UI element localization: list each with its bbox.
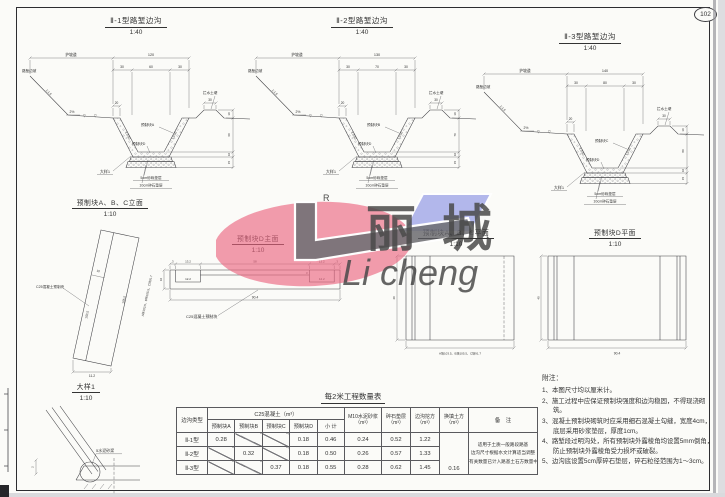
dim-total: 120 xyxy=(148,53,154,57)
cell-type: Ⅱ-2型 xyxy=(177,447,208,461)
slope-label: 路堑边坡 xyxy=(22,68,37,73)
dim-mound-width: 30 xyxy=(662,114,666,118)
dim-right: 30 xyxy=(632,81,636,85)
slope-label: 路堑边坡 xyxy=(248,68,263,73)
dim-right: 30 xyxy=(178,65,182,69)
block-d-plan-drawing: 40 90.4 xyxy=(536,250,694,358)
detail-1-drawing: 5水泥砂浆 2 xyxy=(30,404,142,496)
block-d-front-figure: 预制块D主面 1:10 3 13.2 58 13.2 3 12.2 12.2 xyxy=(158,228,358,328)
dim-lining-top: 20 xyxy=(569,117,573,121)
block-bottom-label: 预制块D xyxy=(132,141,146,146)
vdim-cushion: 15 xyxy=(681,177,685,181)
mound-label: 拦水土埂 xyxy=(657,106,672,111)
col-header-type: 边沟类型 xyxy=(177,408,208,433)
ground-lines xyxy=(256,76,476,119)
dim-height: 10 xyxy=(159,278,163,282)
dim-mound-width: 30 xyxy=(208,98,212,102)
cell-replacement: 0.16 xyxy=(440,433,469,475)
vdim-cushion: 15 xyxy=(227,161,231,165)
dim-notch-depth: 3 xyxy=(306,271,308,275)
notes-section: 附注： 1、本图尺寸均以厘米计。 2、施工过程中应保证预制块强度和边沟稳固，不得… xyxy=(542,374,714,468)
dim-berm: 护坡道 xyxy=(65,52,77,57)
vdim-depth: 60 xyxy=(227,133,231,137)
sub-header-subtotal: 小 计 xyxy=(317,420,344,433)
block-outline xyxy=(406,256,514,340)
section-2-2-figure: Ⅱ-2型路堑边沟 1:40 护坡道 130 30 xyxy=(246,10,478,192)
col-header-excavation: 边沟挖方 （m³） xyxy=(411,408,440,433)
section-title-wrap: Ⅱ-1型路堑边沟 1:40 xyxy=(20,10,252,36)
note-item: 2、施工过程中应保证预制块强度和边沟稳固，不得现浇砌筑。 xyxy=(542,397,714,416)
dim-width: 90.4 xyxy=(614,352,621,356)
quantity-table: 边沟类型 C25混凝土（m³） M10水泥砂浆 （m³） 碎石垫层 （m³） 边… xyxy=(176,407,538,475)
section-scale: 1:40 xyxy=(20,28,252,36)
block-bottom-label: 预制块D xyxy=(586,157,600,162)
detail-ref-label: 大样1 xyxy=(100,168,111,174)
cell-value: 1.45 xyxy=(411,461,440,475)
block-title-wrap: 预制块A、B、C立面 1:10 xyxy=(34,192,186,218)
block-outline xyxy=(170,270,340,289)
dim-height: 40 xyxy=(537,296,541,300)
cell-value: 0.50 xyxy=(317,447,344,461)
mound-label: 拦水土埂 xyxy=(429,90,444,95)
scan-corner-mark xyxy=(0,485,9,497)
block-scale: 1:10 xyxy=(390,240,522,248)
block-side-label: 预制块B xyxy=(367,122,381,127)
block-title-wrap: 预制块A、B、C平面 1:10 xyxy=(390,222,522,248)
cell-value: 0.46 xyxy=(317,433,344,447)
dim-mid: 80 xyxy=(603,81,607,85)
vdim-depth: 80 xyxy=(681,149,685,153)
block-d-front-drawing: 3 13.2 58 13.2 3 12.2 12.2 3 10 90.4 C25… xyxy=(158,256,358,328)
dimension-lines xyxy=(540,255,688,350)
col-header-mortar: M10水泥砂浆 （m³） xyxy=(345,408,382,433)
cell-value: 0.28 xyxy=(345,461,382,475)
table-row: Ⅱ-1型 0.28 0.18 0.46 0.24 0.52 1.22 0.16 … xyxy=(177,433,538,447)
water-level-icon: ▽ xyxy=(320,114,324,118)
dim-t3: 58 xyxy=(253,260,257,264)
remark-line: 边沟尺寸根据水文计算适当调整 xyxy=(469,449,537,457)
mound-label: 拦水土埂 xyxy=(203,90,218,95)
col-header-line: （m³） xyxy=(440,420,468,426)
detail-ref-label: 大样1 xyxy=(326,168,337,174)
vdim-block: 10 xyxy=(453,153,457,157)
dim-length-a: 103.5 xyxy=(84,310,90,319)
ditch-cross-section-drawing: 护坡道 130 30 70 30 20 30 拦水土埂 路堑边坡 1:1.5 2… xyxy=(246,38,478,192)
grade-label: 2% xyxy=(296,110,301,114)
water-level-icon: ▽ xyxy=(94,114,98,118)
dim-total: 130 xyxy=(374,53,380,57)
cell-value: 0.24 xyxy=(345,433,382,447)
notes-title: 附注： xyxy=(542,374,714,384)
cell-value: 1.22 xyxy=(411,433,440,447)
dim-mound-width: 30 xyxy=(434,98,438,102)
note-item: 1、本图尺寸均以厘米计。 xyxy=(542,386,714,396)
cell-empty-slash xyxy=(208,461,235,475)
block-lengths-note: A块103.5、B块105.5、C块91.7 xyxy=(439,351,481,356)
cell-empty-slash xyxy=(208,447,235,461)
block-abc-plan-drawing: 40 A块103.5、B块105.5、C块91.7 xyxy=(390,250,522,358)
note-item: 5、边沟底设置5cm厚碎石垫层，碎石粒径范围为1～3cm。 xyxy=(542,457,714,467)
section-title: Ⅱ-2型路堑边沟 xyxy=(331,15,393,28)
cell-value: 0.52 xyxy=(382,433,411,447)
cushion1-label: 5cm砂砾垫层 xyxy=(140,175,162,180)
dim-lining-top: 20 xyxy=(341,101,345,105)
dim-berm: 护坡道 xyxy=(519,68,531,73)
cell-value: 0.18 xyxy=(290,447,317,461)
detail-ref-label: 大样1 xyxy=(554,184,565,190)
cell-empty-slash xyxy=(235,433,262,447)
block-abc-plan-figure: 预制块A、B、C平面 1:10 40 A块103.5、B块105.5、C块91.… xyxy=(390,222,522,358)
block-outline xyxy=(548,256,686,340)
block-d-plan-figure: 预制块D平面 1:10 40 90.4 xyxy=(536,222,694,358)
sub-header-block-a: 预制块A xyxy=(208,420,235,433)
cell-empty-slash xyxy=(235,461,262,475)
block-title: 预制块D平面 xyxy=(589,227,641,239)
section-2-1-figure: Ⅱ-1型路堑边沟 1:40 护坡道 120 30 xyxy=(20,10,252,192)
cell-type: Ⅱ-1型 xyxy=(177,433,208,447)
section-title-wrap: Ⅱ-2型路堑边沟 1:40 xyxy=(246,10,478,36)
cell-value: 0.26 xyxy=(345,447,382,461)
cell-value: 0.55 xyxy=(317,461,344,475)
block-outline xyxy=(73,230,139,366)
detail-1-figure: 大样1 1:10 5水泥砂浆 2 xyxy=(30,376,142,496)
remark-line: 有关数量已计入路基土石方数量中 xyxy=(469,458,537,466)
block-side-label: 预制块C xyxy=(595,138,609,143)
vdim-depth: 70 xyxy=(453,133,457,137)
cushion2-label: 10cm碎石垫层 xyxy=(139,183,163,188)
section-title: Ⅱ-3型路堑边沟 xyxy=(559,31,621,44)
vdim-top: 10 xyxy=(453,112,457,116)
cushion2-label: 10cm碎石垫层 xyxy=(593,199,617,204)
detail-title-wrap: 大样1 1:10 xyxy=(30,376,142,402)
col-header-line: （m³） xyxy=(382,420,410,426)
dim-width: 90.4 xyxy=(252,296,259,300)
dim-t5: 3 xyxy=(336,260,338,264)
dim-notch-right: 12.2 xyxy=(319,277,325,281)
remark-line: 适用于土质一般路段路基 xyxy=(469,441,537,449)
section-scale: 1:40 xyxy=(470,44,710,52)
block-lengths-note: A块103.5、B块105.5、C块91.7 xyxy=(140,274,154,316)
table-title: 每2米工程数量表 xyxy=(321,391,386,404)
section-title-wrap: Ⅱ-3型路堑边沟 1:40 xyxy=(470,26,710,52)
col-header-c25: C25混凝土（m³） xyxy=(208,408,345,420)
dim-mid: 60 xyxy=(149,65,153,69)
dim-mid: 70 xyxy=(375,65,379,69)
joint-material-label: 5水泥砂浆 xyxy=(96,447,114,453)
grade-label: 2% xyxy=(70,110,75,114)
dim-right: 30 xyxy=(404,65,408,69)
margin-binding-marks xyxy=(4,388,12,472)
dim-left: 30 xyxy=(574,81,578,85)
cell-value: 0.57 xyxy=(382,447,411,461)
sub-header-block-c: 预制块C xyxy=(262,420,289,433)
grade-label: 2% xyxy=(524,126,529,130)
block-scale: 1:10 xyxy=(536,240,694,248)
cushion2-label: 10cm碎石垫层 xyxy=(365,183,389,188)
cushion1-label: 5cm砂砾垫层 xyxy=(594,191,616,196)
block-title-wrap: 预制块D主面 1:10 xyxy=(158,228,358,254)
cell-remark: 适用于土质一般路段路基 边沟尺寸根据水文计算适当调整 有关数量已计入路基土石方数… xyxy=(469,433,538,475)
dim-left: 30 xyxy=(120,65,124,69)
dim-t2: 13.2 xyxy=(185,260,191,264)
dim-left: 30 xyxy=(346,65,350,69)
detail-title: 大样1 xyxy=(72,381,101,393)
dim-t1: 3 xyxy=(172,260,174,264)
cell-value: 1.33 xyxy=(411,447,440,461)
section-scale: 1:40 xyxy=(246,28,478,36)
ditch-cross-section-drawing: 护坡道 140 30 80 30 20 30 拦水土埂 路堑边坡 1:1.5 2… xyxy=(474,54,706,208)
dim-length-b: 105.5 xyxy=(121,295,127,304)
block-scale: 1:10 xyxy=(34,210,186,218)
cell-value: 0.18 xyxy=(290,461,317,475)
dim-total: 140 xyxy=(602,69,608,73)
quantity-table-section: 每2米工程数量表 边沟类型 C25混凝土（m³） M10水泥砂浆 （m³） 碎石… xyxy=(176,386,530,475)
vdim-block: 10 xyxy=(227,153,231,157)
cell-value: 0.18 xyxy=(290,433,317,447)
dim-berm: 护坡道 xyxy=(291,52,303,57)
joint-lines xyxy=(46,406,140,482)
vdim-top: 10 xyxy=(681,128,685,132)
cell-value: 0.28 xyxy=(208,433,235,447)
dimension-lines xyxy=(35,454,123,494)
section-2-3-figure: Ⅱ-3型路堑边沟 1:40 护坡道 140 30 xyxy=(470,26,710,208)
col-header-remark: 备 注 xyxy=(469,408,538,433)
dim-t4: 13.2 xyxy=(319,260,325,264)
vdim-cushion: 15 xyxy=(453,161,457,165)
col-header-replacement: 换填土方 （m³） xyxy=(440,408,469,433)
cushion1-label: 5cm砂砾垫层 xyxy=(366,175,388,180)
cell-type: Ⅱ-3型 xyxy=(177,461,208,475)
cell-value: 0.32 xyxy=(235,447,262,461)
sub-header-block-d: 预制块D xyxy=(290,420,317,433)
dim-strip-width: 10 xyxy=(96,269,100,274)
block-bottom-label: 预制块D xyxy=(358,141,372,146)
detail-scale: 1:10 xyxy=(30,394,142,402)
note-item: 4、路堑段过明沟处，所有预制块外露棱角均设置5mm倒角，防止预制块外露棱角受力损… xyxy=(542,437,714,456)
cell-empty-slash xyxy=(262,447,289,461)
ditch-cross-section-drawing: 护坡道 120 30 60 30 20 30 拦水土埂 路堑边坡 1:1.5 2… xyxy=(20,38,252,192)
slope-label: 路堑边坡 xyxy=(476,84,491,89)
ground-lines xyxy=(484,92,704,135)
dim-notch-left: 12.2 xyxy=(185,277,191,281)
block-title: 预制块A、B、C平面 xyxy=(418,227,495,239)
block-title: 预制块D主面 xyxy=(232,233,284,245)
ground-lines xyxy=(30,76,250,119)
drawing-sheet: 102 Ⅱ-1型路堑边沟 1:40 护坡道 xyxy=(0,0,725,497)
water-level-icon: ▽ xyxy=(548,130,552,134)
block-scale: 1:10 xyxy=(158,246,358,254)
dim-height: 40 xyxy=(392,296,396,300)
vdim-block: 10 xyxy=(681,169,685,173)
dim-joint: 2 xyxy=(31,466,35,468)
col-header-line: （m³） xyxy=(411,420,439,426)
scan-edge-right-outer xyxy=(718,0,725,497)
material-label: C25混凝土预制块 xyxy=(186,313,217,319)
dim-lining-top: 20 xyxy=(115,101,119,105)
cell-value: 0.62 xyxy=(382,461,411,475)
cell-value: 0.37 xyxy=(262,461,289,475)
block-side-label: 预制块A xyxy=(141,122,155,127)
vdim-top: 10 xyxy=(227,112,231,116)
replacement-value: 0.16 xyxy=(440,466,468,474)
section-title: Ⅱ-1型路堑边沟 xyxy=(105,15,167,28)
block-title-wrap: 预制块D平面 1:10 xyxy=(536,222,694,248)
note-item: 3、混凝土预制块砌筑时应采用细石混凝土勾缝，宽度4cm，底层采用砂浆垫层，厚度1… xyxy=(542,417,714,436)
col-header-gravel: 碎石垫层 （m³） xyxy=(382,408,411,433)
material-label: C25混凝土预制块 xyxy=(36,284,65,289)
col-header-line: （m³） xyxy=(345,420,381,426)
sub-header-block-b: 预制块B xyxy=(235,420,262,433)
block-title: 预制块A、B、C立面 xyxy=(72,197,149,209)
dimension-lines xyxy=(396,255,516,350)
cell-empty-slash xyxy=(262,433,289,447)
table-title-wrap: 每2米工程数量表 xyxy=(176,386,530,404)
